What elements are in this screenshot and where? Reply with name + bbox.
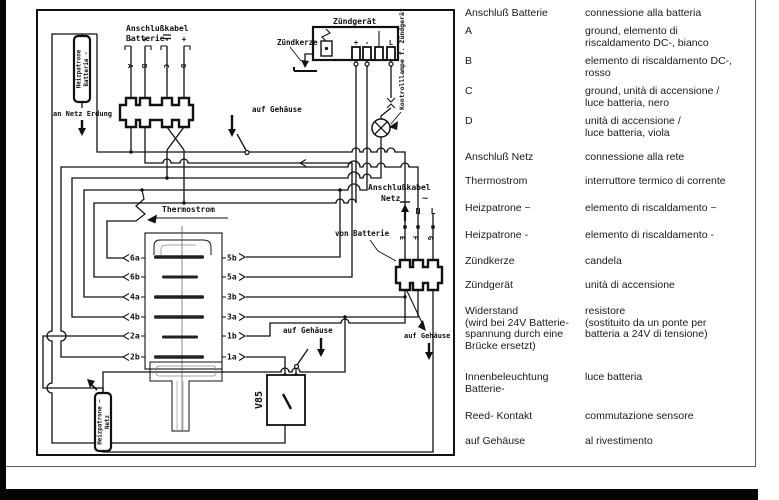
- legend-term: B: [465, 56, 581, 68]
- row-1a: 1a: [227, 353, 237, 362]
- row-5a: 5a: [227, 273, 237, 282]
- row-3b: 3b: [227, 293, 237, 302]
- heater-tube-icon: [154, 240, 211, 255]
- legend-term: Reed- Kontakt: [465, 411, 581, 423]
- legend-translation: connessione alla batteria: [585, 8, 757, 20]
- l-label: L: [431, 207, 436, 216]
- row-4a: 4a: [130, 293, 140, 302]
- legend-term: Anschluß Netz: [465, 152, 581, 164]
- terminal-sockets: [354, 62, 393, 66]
- legend-term: Anschluß Batterie: [465, 8, 581, 20]
- v85-resistor: V85: [254, 375, 305, 425]
- case-label-right: auf Gehäuse: [404, 332, 450, 340]
- row-2a: 2a: [130, 332, 140, 341]
- diagonal-arrowhead: [418, 320, 426, 331]
- spark-plug-label: Zündkerze: [277, 38, 318, 47]
- legend-translation: unità di accensione: [585, 280, 757, 292]
- case-label-v85: auf Gehäuse: [283, 326, 333, 335]
- battery-cable-labels: Anschlußkabel Batterie - + - + A B C D: [126, 24, 189, 69]
- polarity-d: +: [182, 35, 187, 44]
- legend-translation: candela: [585, 256, 757, 268]
- mains-heater-component: Heizpatrone ~ Netz: [87, 379, 111, 451]
- legend-translation: elemento di riscaldamento DC-, rosso: [585, 56, 757, 79]
- mains-cable-label-1: Anschlußkabel: [368, 183, 431, 192]
- battery-heater-label-2: Batterie -: [84, 52, 90, 87]
- legend-translation: luce batteria: [585, 372, 757, 384]
- legend-term: C: [465, 86, 581, 98]
- ignition-title: Zündgerät: [333, 17, 377, 26]
- polarity-a: -: [129, 35, 134, 44]
- case-arrow-v85-icon: [317, 338, 325, 357]
- case-arrow-mid-icon: [228, 115, 236, 137]
- heater-bars: [154, 255, 204, 359]
- battery-connector: [120, 98, 193, 127]
- v85-label: V85: [254, 391, 265, 409]
- wire-f-label: F: [411, 236, 419, 240]
- legend-translation: unità di accensione / luce batteria, vio…: [585, 116, 757, 139]
- wire-g-label: G: [426, 236, 434, 240]
- row-3a: 3a: [227, 313, 237, 322]
- case-connection-right: auf Gehäuse: [404, 320, 450, 360]
- row-4b: 4b: [130, 313, 140, 322]
- n-label: N: [416, 207, 421, 216]
- case-switch-v85: auf Gehäuse: [283, 326, 333, 369]
- battery-heater-label-1: Heizpatrone: [77, 49, 83, 88]
- terminal-l-label: L: [389, 39, 393, 47]
- wire-b-label: B: [140, 64, 148, 68]
- page-edge-line: [6, 466, 755, 467]
- legend-translation: elemento di riscaldamento -: [585, 230, 757, 242]
- legend-translation: elemento di riscaldamento ~: [585, 203, 757, 215]
- case-label-mid: auf Gehäuse: [252, 105, 302, 114]
- legend-translation: interruttore termico di corrente: [585, 176, 757, 188]
- mains-connector: [396, 260, 442, 290]
- earth-up-arrow-icon: [400, 202, 410, 221]
- earth-label: an Netz Erdung: [53, 110, 112, 118]
- row-5b: 5b: [227, 254, 237, 263]
- polarity-b: +: [143, 35, 148, 44]
- legend-term: Zündgerät: [465, 280, 581, 292]
- legend-term: Heizpatrone -: [465, 230, 581, 242]
- mains-cable-label-2: Netz: [381, 194, 400, 203]
- legend-term: Heizpatrone ~: [465, 203, 581, 215]
- legend-table: Anschluß Batterieconnessione alla batter…: [465, 0, 757, 465]
- scan-edge-bottom: [0, 489, 758, 500]
- legend-translation: ground, unità di accensione / luce batte…: [585, 86, 757, 109]
- thermo-switch: Thermostrom: [147, 205, 228, 224]
- wire-a-label: A: [126, 64, 134, 69]
- control-lamp-label: Kontrolllampe f. Zündgerät: [398, 8, 406, 110]
- plug-markers-right: [239, 254, 245, 361]
- legend-term: Thermostrom: [465, 176, 581, 188]
- legend-term: A: [465, 26, 581, 38]
- manual-page: Heizpatrone Batterie - an Netz Erdung An…: [0, 0, 779, 500]
- polarity-c: -: [165, 35, 170, 44]
- mains-heater-label-1: Heizpatrone ~: [98, 399, 104, 445]
- wires: [43, 34, 433, 452]
- row-2b: 2b: [130, 353, 140, 362]
- wire-d-label: D: [179, 64, 187, 68]
- plug-markers-left: [123, 255, 129, 361]
- wire-e-label: E: [398, 236, 406, 240]
- terminal-plus-label: +: [354, 39, 358, 47]
- plug-break-icon: [387, 98, 395, 108]
- wire-c-label: C: [162, 64, 170, 68]
- battery-cable-label-1: Anschlußkabel: [126, 24, 189, 33]
- scan-edge-left: [0, 0, 6, 500]
- spark-plug-icon: [294, 60, 317, 71]
- legend-translation: commutazione sensore: [585, 411, 757, 423]
- mains-heater-label-2: Netz: [105, 415, 111, 429]
- ac-symbol: ~: [422, 193, 428, 204]
- battery-heater-component: Heizpatrone Batterie -: [74, 36, 90, 102]
- control-lamp-icon: [372, 119, 398, 137]
- legend-term: Zündkerze: [465, 256, 581, 268]
- legend-term: D: [465, 116, 581, 128]
- earth-arrow-icon: [78, 120, 86, 136]
- legend-term: Innenbeleuchtung Batterie-: [465, 372, 581, 395]
- legend-translation: connessione alla rete: [585, 152, 757, 164]
- legend-term: Widerstand (wird bei 24V Batterie- spann…: [465, 306, 581, 352]
- row-6a: 6a: [130, 254, 140, 263]
- legend-translation: al rivestimento: [585, 436, 757, 448]
- thermo-label: Thermostrom: [162, 205, 215, 214]
- case-switch-mid: auf Gehäuse: [228, 105, 302, 155]
- legend-translation: resistore (sostituito da un ponte per ba…: [585, 306, 757, 341]
- from-battery-label: von Batterie: [335, 229, 390, 238]
- row-6b: 6b: [130, 273, 140, 282]
- legend-translation: ground, elemento di riscaldamento DC-, b…: [585, 26, 757, 49]
- legend-term: auf Gehäuse: [465, 436, 581, 448]
- row-1b: 1b: [227, 332, 237, 341]
- case-arrow-right-icon: [425, 343, 433, 360]
- terminal-minus-label: -: [365, 39, 369, 47]
- page-right-edge: [755, 0, 756, 467]
